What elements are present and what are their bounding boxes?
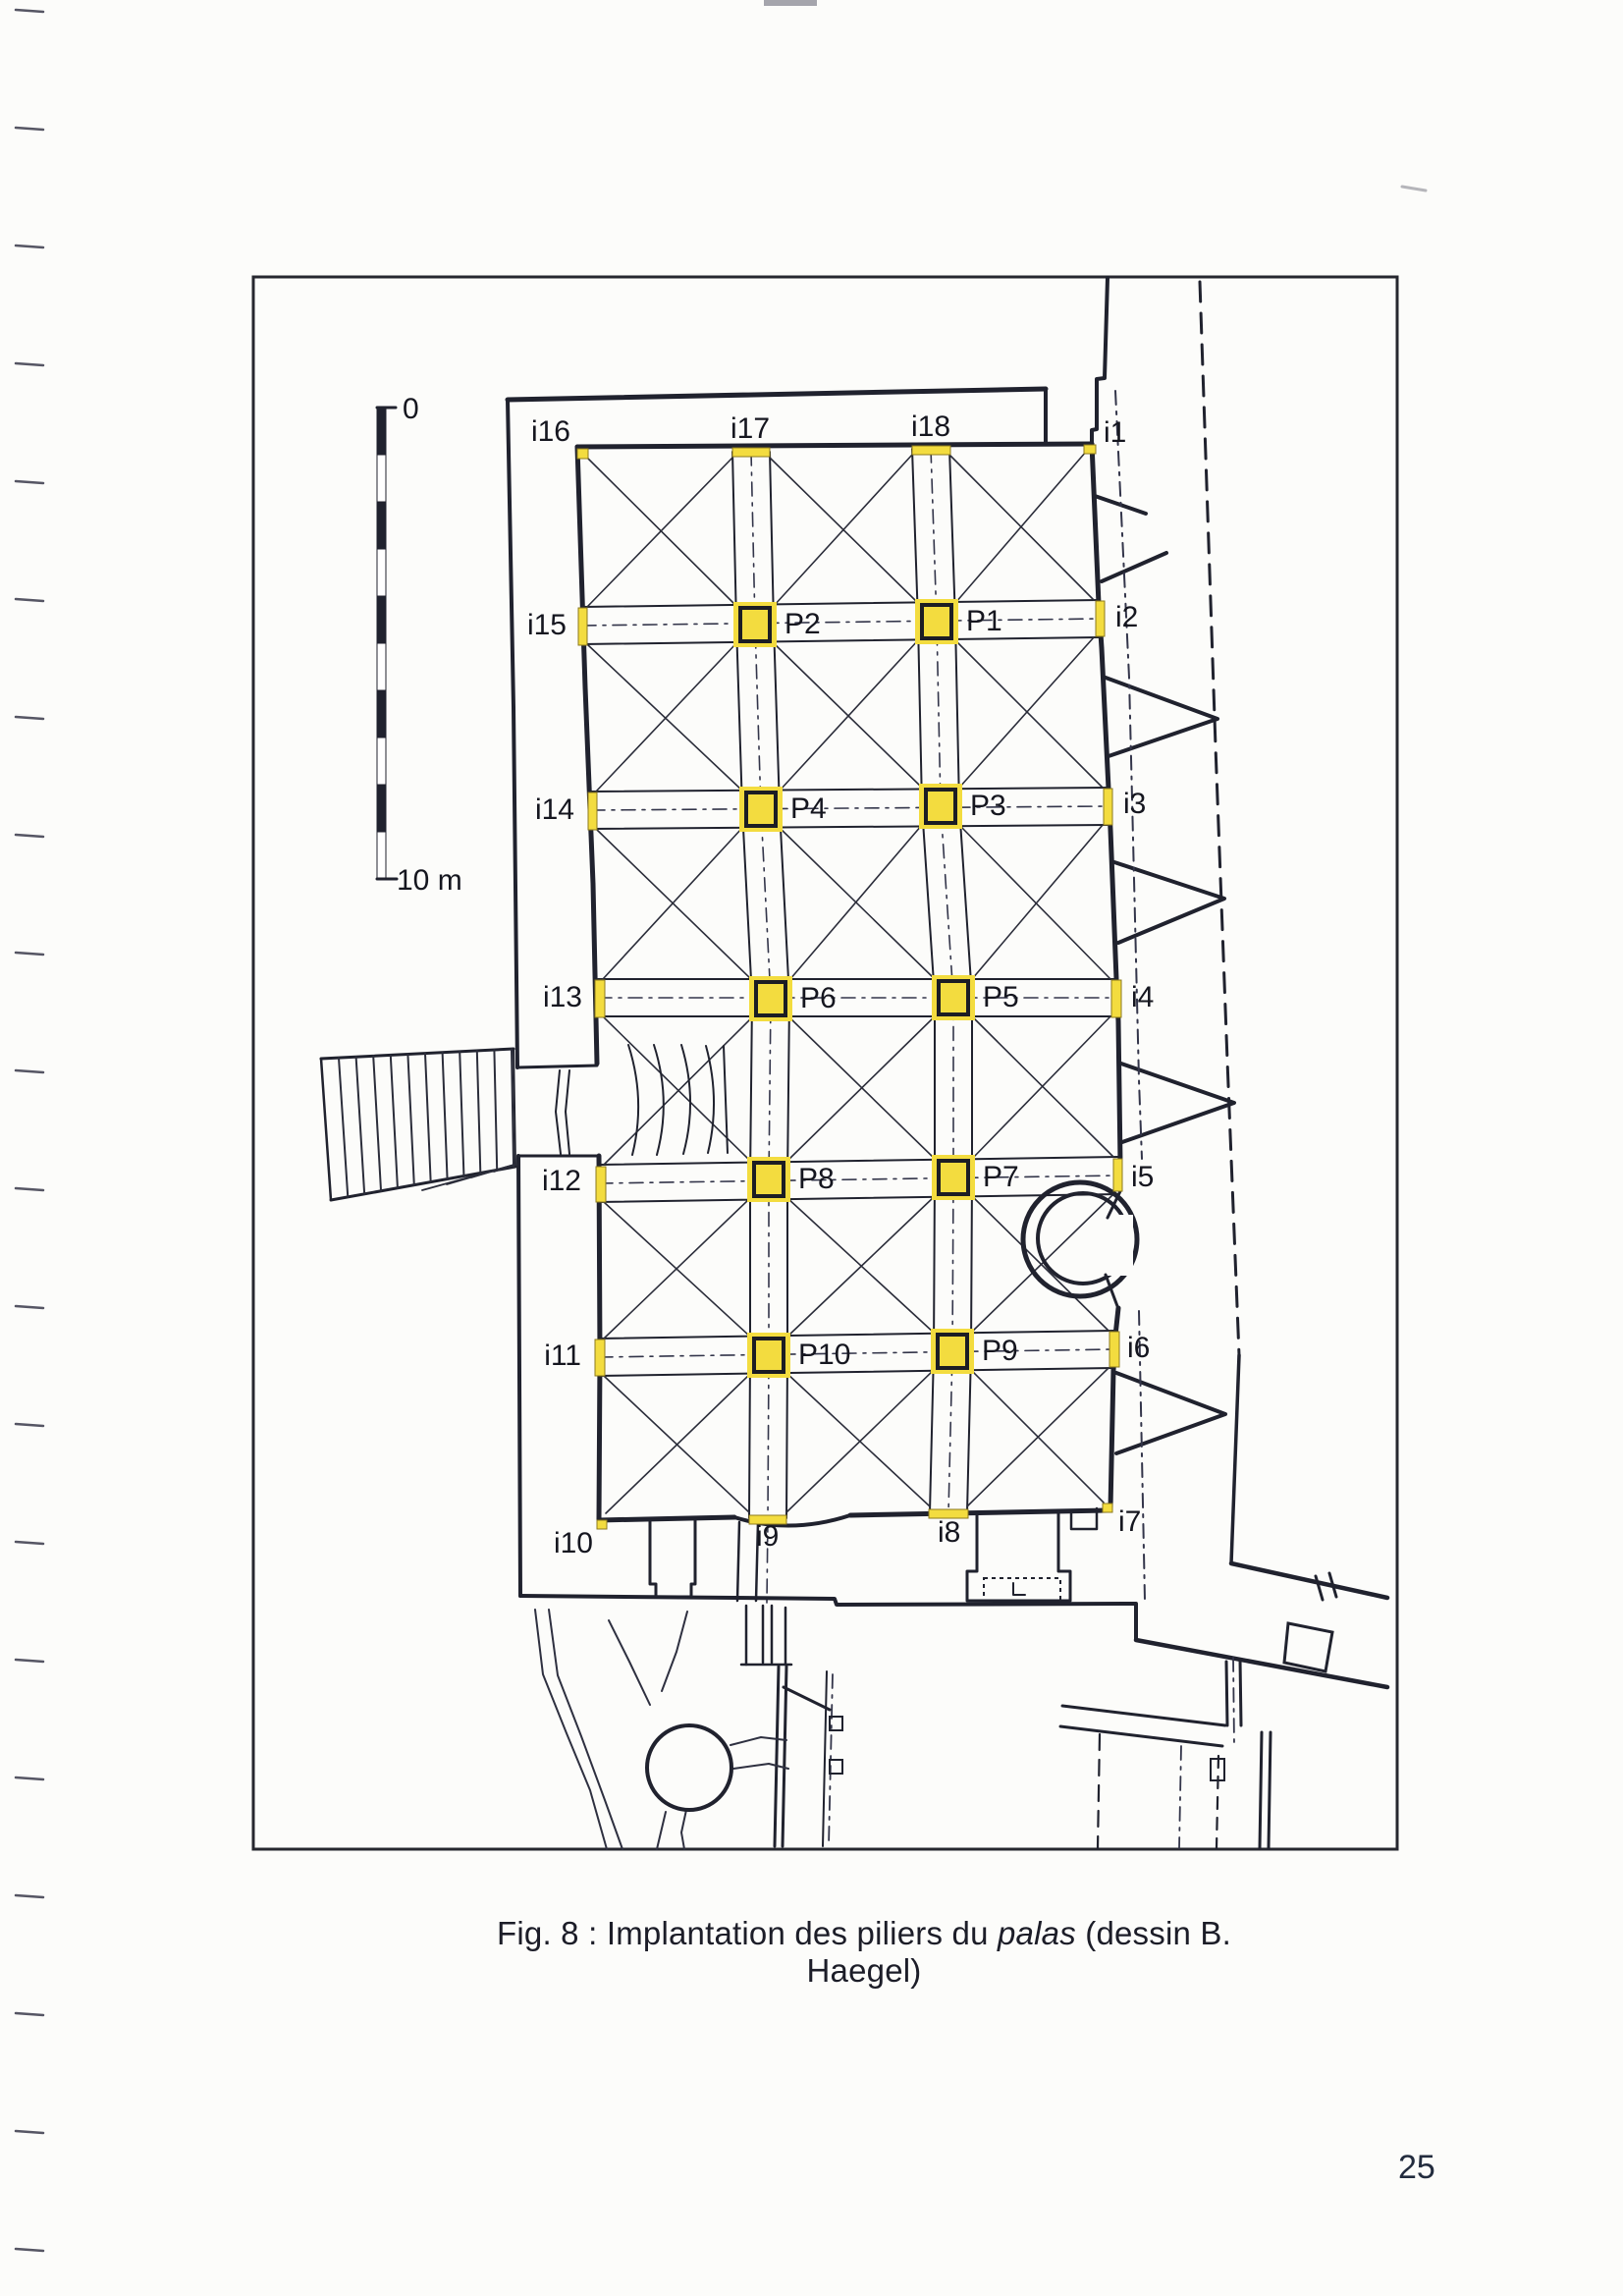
pillar-core-P8 <box>754 1163 784 1196</box>
east-curtain-dashed-line <box>1200 282 1239 1355</box>
terrain-contour-line <box>733 1764 788 1769</box>
lower-dashdot-line <box>1179 1746 1181 1848</box>
binding-mark-artifact <box>16 1188 43 1190</box>
impost-label-i13: i13 <box>543 981 582 1013</box>
external-stair-step-line <box>460 1052 463 1176</box>
binding-mark-artifact <box>16 835 43 837</box>
page-number: 25 <box>1398 2149 1477 2187</box>
impost-marker-i13 <box>595 980 605 1017</box>
impost-label-i2: i2 <box>1115 601 1138 633</box>
row-axis-dashdot-line <box>599 1175 1118 1183</box>
transverse-arch-line <box>599 1331 1113 1339</box>
lower-wall-segment <box>1226 1662 1227 1725</box>
terrain-contour-line <box>657 1812 666 1849</box>
pillar-core-P3 <box>926 790 955 823</box>
pillar-core-P6 <box>756 982 785 1015</box>
binding-mark-artifact <box>16 1424 43 1426</box>
vault-rib-diagonal <box>604 1198 750 1339</box>
scale-bar-segment <box>377 738 386 785</box>
vault-rib-diagonal <box>955 640 1103 788</box>
gate-structure <box>1284 1623 1332 1671</box>
vault-rib-diagonal <box>972 1196 1109 1331</box>
east-embrasure-triangle <box>1121 1064 1234 1142</box>
south-buttress-west <box>650 1518 695 1597</box>
vault-rib-diagonal <box>972 825 1103 979</box>
impost-label-i14: i14 <box>535 793 574 826</box>
pillar-label-P3: P3 <box>970 790 1006 822</box>
outer-west-wall-lower <box>518 1156 520 1596</box>
impost-marker-i1 <box>1084 445 1096 454</box>
impost-label-i6: i6 <box>1127 1332 1150 1364</box>
impost-label-i1: i1 <box>1104 416 1126 449</box>
external-stair-step-line <box>373 1056 381 1190</box>
lower-dashed-line <box>1098 1734 1100 1848</box>
impost-label-i4: i4 <box>1131 981 1154 1013</box>
binding-mark-artifact <box>16 2249 43 2251</box>
scale-bar-label-0: 0 <box>403 393 419 425</box>
vault-rib-diagonal <box>780 828 935 979</box>
pillar-core-P5 <box>939 981 968 1014</box>
forecourt-wall <box>775 1667 779 1846</box>
impost-label-i9: i9 <box>756 1520 779 1553</box>
external-stair-step-line <box>391 1055 398 1187</box>
impost-marker-i10 <box>597 1520 607 1529</box>
scale-bar-segment <box>377 455 386 502</box>
impost-marker-i12 <box>596 1167 606 1202</box>
impost-marker-i6 <box>1109 1332 1119 1367</box>
binding-mark-artifact <box>16 1070 43 1072</box>
external-stair-step-line <box>407 1054 413 1184</box>
row-axis-dashdot-line <box>599 1349 1113 1357</box>
vault-rib-diagonal <box>596 829 752 980</box>
pillar-label-P6: P6 <box>800 982 837 1014</box>
internal-stair-step-curve <box>654 1045 664 1155</box>
east-embrasure-triangle <box>1116 1373 1225 1453</box>
vault-rib-diagonal <box>603 1016 750 1161</box>
lower-wall-axis-dashdot <box>1233 1658 1234 1746</box>
vault-rib-diagonal <box>789 825 922 980</box>
impost-marker-i17 <box>732 448 770 457</box>
scale-bar-label-10m: 10 m <box>397 864 462 897</box>
impost-marker-i15 <box>578 608 587 645</box>
pillar-label-P9: P9 <box>982 1335 1018 1367</box>
pillar-core-P7 <box>939 1161 968 1194</box>
transverse-arch-line <box>599 1368 1113 1376</box>
figure-caption: Fig. 8 : Implantation des piliers du pal… <box>442 1915 1286 1990</box>
impost-marker-i18 <box>912 446 950 455</box>
hall-south-wall-east <box>850 1510 1108 1515</box>
scale-bar-segment <box>377 690 386 738</box>
pillar-label-P5: P5 <box>983 981 1019 1013</box>
binding-mark-artifact <box>16 10 43 12</box>
binding-mark-artifact <box>16 1542 43 1544</box>
binding-mark-artifact <box>16 1895 43 1897</box>
round-tower-opening-mask <box>1106 1215 1133 1276</box>
vault-rib-diagonal <box>780 640 918 791</box>
gate-passage-wall <box>1316 1576 1323 1600</box>
lower-dashed-line <box>1217 1756 1218 1848</box>
pillar-label-P10: P10 <box>798 1339 850 1371</box>
vault-rib-diagonal <box>603 828 742 979</box>
vault-rib-diagonal <box>787 1196 935 1337</box>
forecourt-thin-wall <box>823 1671 827 1846</box>
impost-marker-i4 <box>1111 980 1121 1017</box>
impost-marker-i2 <box>1096 601 1105 636</box>
pillar-label-P4: P4 <box>790 793 827 825</box>
binding-mark-artifact <box>16 128 43 130</box>
south-terrace-wall <box>520 1596 1136 1640</box>
binding-mark-artifact <box>16 363 43 365</box>
lower-wall-segment <box>1269 1732 1271 1848</box>
pillar-core-P9 <box>938 1335 967 1368</box>
vault-rib-diagonal <box>959 825 1110 979</box>
scan-smudge-top <box>764 0 817 6</box>
hall-north-wall <box>577 444 1092 447</box>
outer-west-wall-upper <box>508 400 517 1067</box>
binding-mark-artifact <box>16 246 43 247</box>
scale-bar-segment <box>377 549 386 596</box>
pillar-core-P1 <box>922 605 951 638</box>
forecourt-diagonal-wall <box>784 1687 830 1710</box>
figure-caption-prefix: Fig. 8 : Implantation des piliers du <box>497 1915 998 1951</box>
binding-mark-artifact <box>16 717 43 719</box>
binding-mark-artifact <box>16 1777 43 1779</box>
external-stair-step-line <box>477 1051 481 1174</box>
pillar-label-P8: P8 <box>798 1163 835 1195</box>
east-curtain-solid-end <box>1231 1355 1239 1563</box>
pit-detail-mark <box>1013 1583 1025 1595</box>
impost-label-i11: i11 <box>544 1339 581 1372</box>
terrain-contour-line <box>681 1810 686 1849</box>
scale-bar-segment <box>377 596 386 643</box>
hall-south-wall-west <box>599 1517 734 1520</box>
transverse-arch-line <box>591 825 1108 829</box>
pillar-label-P2: P2 <box>784 608 821 640</box>
scale-bar-segment <box>377 785 386 832</box>
binding-mark-artifact <box>16 953 43 955</box>
figure-caption-italic-word: palas <box>998 1915 1076 1951</box>
hall-west-wall-upper <box>577 447 597 1064</box>
impost-marker-i16 <box>577 449 588 459</box>
impost-label-i10: i10 <box>554 1527 593 1559</box>
binding-mark-artifact <box>16 1306 43 1308</box>
forecourt-wall <box>783 1667 786 1846</box>
terrain-contour-line <box>609 1620 650 1705</box>
vault-rib-diagonal <box>959 637 1094 788</box>
hall-west-wall-lower <box>599 1156 600 1520</box>
doorway-reveal-line <box>566 1070 569 1154</box>
binding-mark-artifact <box>16 2013 43 2015</box>
scale-bar-segment <box>377 643 386 690</box>
impost-label-i17: i17 <box>730 412 770 445</box>
binding-mark-artifact <box>16 599 43 601</box>
impost-label-i12: i12 <box>542 1165 581 1197</box>
pillar-core-P10 <box>754 1339 784 1372</box>
row-axis-dashdot-line <box>591 806 1108 810</box>
impost-label-i15: i15 <box>527 609 567 641</box>
impost-label-i5: i5 <box>1131 1161 1154 1193</box>
binding-mark-artifact <box>16 1660 43 1662</box>
transverse-arch-line <box>582 600 1099 607</box>
east-embrasure-triangle <box>1114 862 1224 943</box>
southeast-diagonal-wall-upper <box>1231 1563 1387 1598</box>
southeast-diagonal-wall-lower <box>1136 1640 1387 1687</box>
external-stair-top-edge <box>321 1049 514 1059</box>
pillar-label-P1: P1 <box>966 605 1002 637</box>
row-axis-dashdot-line <box>582 619 1099 626</box>
vault-rib-diagonal <box>774 455 912 606</box>
pillar-core-P4 <box>746 793 776 826</box>
lower-wall-segment <box>1260 1732 1262 1848</box>
terrain-contour-line <box>549 1610 622 1849</box>
scan-smudge-right <box>1402 187 1426 191</box>
east-wall-spur <box>1102 553 1166 581</box>
lower-cross-wall <box>1062 1706 1225 1725</box>
south-buttress-dotted-pit <box>984 1578 1060 1601</box>
scale-bar-segment <box>377 502 386 549</box>
doorway-jamb-north <box>517 1066 597 1067</box>
vault-rib-diagonal <box>955 452 1086 603</box>
impost-marker-i3 <box>1104 789 1112 825</box>
scale-bar-segment <box>377 832 386 879</box>
external-stair-step-line <box>339 1058 348 1197</box>
scanned-document-page: 010 mP1P2P3P4P5P6P7P8P9P10i1i2i3i4i5i6i7… <box>0 0 1623 2296</box>
impost-label-i7: i7 <box>1118 1505 1141 1538</box>
vault-rib-diagonal <box>596 643 736 792</box>
south-buttress-east <box>967 1512 1070 1601</box>
impost-marker-i5 <box>1113 1159 1122 1191</box>
pillar-core-P2 <box>740 608 770 641</box>
terrain-contour-line <box>535 1610 607 1849</box>
impost-label-i8: i8 <box>938 1516 960 1549</box>
impost-marker-i14 <box>588 793 597 830</box>
external-stair-left-edge <box>321 1059 331 1200</box>
external-stair-step-line <box>443 1053 448 1179</box>
impost-label-i18: i18 <box>911 410 950 443</box>
external-stair-step-line <box>425 1054 431 1182</box>
internal-stair-step-curve <box>681 1045 690 1154</box>
lower-wall-segment <box>1240 1660 1241 1725</box>
well-circle <box>647 1725 731 1810</box>
lower-cross-wall <box>1060 1726 1222 1746</box>
binding-mark-artifact <box>16 2131 43 2133</box>
impost-label-i3: i3 <box>1123 788 1146 820</box>
forecourt-socket <box>830 1760 842 1774</box>
terrain-contour-line <box>662 1612 687 1691</box>
doorway-reveal-line <box>556 1070 561 1154</box>
vault-rib-diagonal <box>587 644 742 791</box>
impost-marker-i11 <box>595 1339 605 1376</box>
south-door-cheek <box>737 1522 739 1601</box>
binding-mark-artifact <box>16 481 43 483</box>
transverse-arch-line <box>599 1157 1118 1165</box>
external-stair-step-line <box>356 1057 365 1194</box>
scale-bar-segment <box>377 408 386 455</box>
annex-north-wall <box>508 389 1046 400</box>
east-embrasure-triangle <box>1106 678 1217 756</box>
external-stair-step-line <box>494 1050 497 1170</box>
impost-label-i16: i16 <box>531 415 570 448</box>
impost-marker-i7 <box>1103 1503 1112 1512</box>
transverse-arch-line <box>591 788 1108 792</box>
transverse-arch-line <box>582 637 1099 644</box>
vault-rib-diagonal <box>786 1370 934 1512</box>
pillar-label-P7: P7 <box>983 1161 1019 1193</box>
